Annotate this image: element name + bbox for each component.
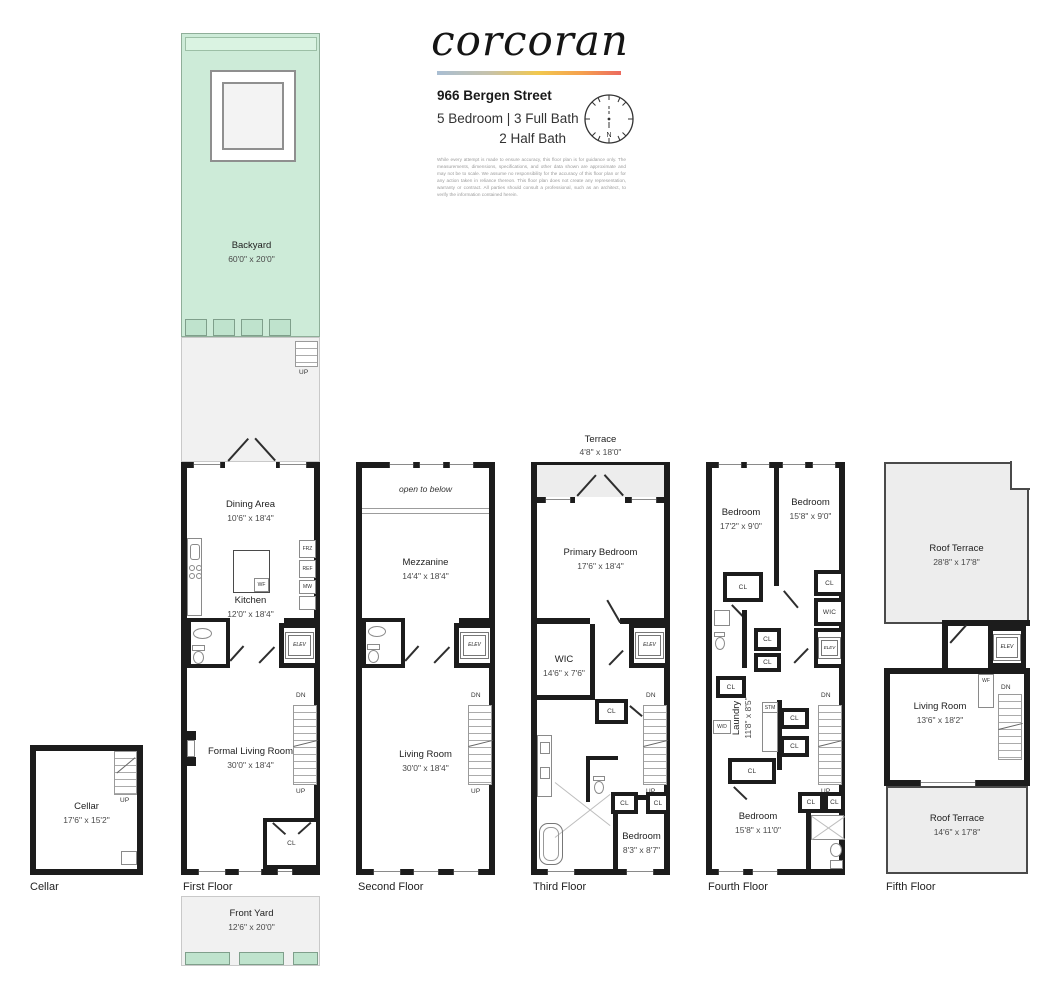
fireplace — [187, 757, 196, 766]
wic-label: WIC — [823, 609, 836, 616]
fifth-floor-stairs — [998, 694, 1022, 760]
window — [547, 869, 575, 875]
third-floor-terrace — [537, 465, 664, 497]
bath-sink — [368, 626, 386, 637]
closet-door-leaf — [630, 705, 643, 716]
third-floor-plan: Primary Bedroom 17'6" x 18'4" ELEV WIC 1… — [531, 462, 670, 875]
fourth-bedroom3-label: Bedroom 15'8" x 11'0" — [706, 810, 810, 836]
stove-burner — [196, 573, 202, 579]
bath-sink — [714, 610, 730, 626]
elevator-label: ELEV — [821, 640, 839, 657]
window — [419, 462, 444, 468]
front-yard-label: Front Yard 12'6" x 20'0" — [182, 907, 321, 933]
window — [631, 497, 657, 503]
bed-bath-line2: 2 Half Bath — [437, 131, 566, 146]
door-leaf — [606, 600, 620, 623]
bedroom-closet: CL — [723, 572, 763, 602]
backyard-structure — [210, 70, 296, 162]
mezzanine-label: Mezzanine 14'4" x 18'4" — [356, 556, 495, 582]
bedroom-closet: CL — [824, 792, 845, 813]
window — [453, 869, 479, 875]
bedroom-closet: CL — [814, 570, 845, 596]
backyard-rear-strip — [185, 37, 317, 51]
bed-bath-line1: 5 Bedroom | 3 Full Bath — [437, 111, 579, 126]
third-floor-page-label: Third Floor — [533, 881, 586, 893]
floorplan-page: corcoran 966 Bergen Street 5 Bedroom | 3… — [0, 0, 1062, 1000]
closet-label: CL — [739, 584, 748, 591]
closet-label: CL — [763, 636, 772, 643]
closet-label: CL — [287, 840, 296, 847]
bedroom-closet: CL — [611, 792, 638, 814]
cellar-stairs — [114, 751, 137, 795]
french-door-leaf — [254, 438, 275, 461]
planter — [213, 319, 235, 336]
upper-roof-terrace-label: Roof Terrace 28'8" x 17'8" — [884, 542, 1029, 568]
second-floor-page-label: Second Floor — [358, 881, 423, 893]
hall-closet: CL — [595, 699, 628, 724]
mezzanine-edge-line — [362, 513, 489, 514]
stove-burner — [189, 573, 195, 579]
third-floor-stairs — [643, 705, 667, 785]
wet-bar-label: WF — [982, 678, 990, 707]
kitchen-label: Kitchen 12'0" x 18'4" — [181, 594, 320, 620]
elevator: ELEV — [279, 623, 320, 668]
door-leaf — [608, 650, 623, 665]
window — [193, 462, 221, 468]
hall-closet: CL — [780, 736, 809, 757]
closet-label: CL — [825, 580, 834, 587]
front-yard-area: Front Yard 12'6" x 20'0" — [181, 896, 320, 966]
window — [626, 869, 654, 875]
bath-sink — [830, 860, 843, 869]
elevator: ELEV — [988, 626, 1026, 668]
third-bedroom-label: Bedroom 8'3" x 8'7" — [613, 830, 670, 856]
disclaimer-text: While every attempt is made to ensure ac… — [437, 156, 626, 198]
french-door-leaf — [227, 438, 248, 461]
roof-notch — [1010, 461, 1030, 490]
hall-closet: CL — [780, 708, 809, 729]
planter — [241, 319, 263, 336]
window — [198, 869, 226, 875]
window — [746, 462, 770, 468]
stairs-dn-label: DN — [821, 692, 831, 699]
first-floor-closet: CL — [263, 818, 320, 869]
rear-door-opening — [225, 462, 276, 468]
stairs-up-label: UP — [471, 788, 480, 795]
planter — [239, 952, 284, 965]
walk-in-closet: WIC — [814, 598, 845, 626]
window — [545, 497, 571, 503]
closet-label: CL — [654, 800, 663, 807]
closet-door-leaf — [733, 786, 747, 800]
closet-label: CL — [763, 659, 772, 666]
kitchen-sink — [190, 544, 200, 560]
door-leaf — [793, 648, 808, 663]
refrigerator: REF — [299, 560, 316, 578]
vanity-sink — [540, 767, 550, 779]
door-leaf — [404, 645, 418, 661]
rear-deck-area: UP — [181, 337, 320, 462]
washer-dryer-label: W/D — [717, 724, 727, 730]
wic-label: WIC 14'6" x 7'6" — [531, 653, 597, 679]
cellar-label: Cellar 17'6" x 15'2" — [30, 800, 143, 826]
window — [718, 869, 744, 875]
fireplace — [187, 731, 196, 740]
stove-burner — [189, 565, 195, 571]
window — [277, 869, 293, 875]
compass-north-label: N — [606, 132, 611, 139]
window — [389, 462, 414, 468]
brand-gradient-bar — [437, 71, 621, 75]
hall-closet: CL — [754, 628, 781, 651]
microwave: MW — [299, 580, 316, 594]
closet-label: CL — [607, 708, 616, 715]
terrace-door-opening — [575, 497, 625, 503]
closet-label: CL — [790, 743, 799, 750]
wine-fridge-label: WF — [258, 582, 266, 588]
fourth-floor-stairs — [818, 705, 842, 785]
second-floor-plan: open to below Mezzanine 14'4" x 18'4" EL… — [356, 462, 495, 875]
door-leaf — [258, 646, 274, 663]
wet-bar: WF — [978, 674, 994, 708]
closet-label: CL — [807, 799, 816, 806]
first-floor-page-label: First Floor — [183, 881, 233, 893]
fireplace-niche — [187, 740, 195, 757]
washer-dryer: W/D — [713, 720, 731, 734]
cellar-page-label: Cellar — [30, 881, 59, 893]
closet-label: CL — [748, 768, 757, 775]
window — [373, 869, 401, 875]
stairs-dn-label: DN — [296, 692, 306, 699]
laundry-label: Laundry 11'8" x 8'5" — [731, 683, 755, 753]
shower-line — [555, 794, 611, 838]
stove-burner — [196, 565, 202, 571]
window — [413, 869, 439, 875]
hall-closet: CL — [754, 653, 781, 672]
door-leaf — [433, 646, 449, 663]
mezzanine-edge-line — [362, 508, 489, 509]
planter — [185, 319, 207, 336]
window — [718, 462, 742, 468]
open-to-below-label: open to below — [356, 484, 495, 494]
elevator-label: ELEV — [463, 635, 486, 656]
second-floor-stairs — [468, 705, 492, 785]
freezer-label: FRZ — [303, 546, 313, 552]
elevator-label: ELEV — [288, 635, 311, 656]
window — [782, 462, 806, 468]
closet-label: CL — [620, 800, 629, 807]
vanity-sink — [540, 742, 550, 754]
deck-stairs-up-label: UP — [299, 369, 308, 376]
planter — [185, 952, 230, 965]
elevator: ELEV — [629, 623, 670, 668]
bedroom-closet: CL — [728, 758, 776, 784]
toilet-bowl — [368, 650, 379, 663]
powder-sink — [193, 628, 212, 639]
door-leaf — [783, 590, 798, 608]
elevator: ELEV — [454, 623, 495, 668]
lower-roof-terrace-label: Roof Terrace 14'6" x 17'8" — [886, 812, 1028, 838]
toilet-bowl — [594, 781, 604, 794]
terrace-label: Terrace 4'8" x 18'0" — [531, 434, 670, 458]
fourth-floor-page-label: Fourth Floor — [708, 881, 768, 893]
steam-unit: STM — [762, 702, 778, 713]
closet-label: CL — [790, 715, 799, 722]
toilet-bowl — [830, 843, 842, 857]
window — [238, 869, 262, 875]
backyard-area: Backyard 60'0" x 20'0" — [181, 33, 320, 337]
door-leaf — [229, 645, 243, 661]
property-address: 966 Bergen Street — [437, 88, 552, 103]
fifth-floor-plan: Roof Terrace 28'8" x 17'8" ELEV Living R… — [884, 462, 1030, 875]
elevator-label: ELEV — [996, 637, 1019, 658]
window — [812, 462, 836, 468]
corcoran-logo: corcoran — [410, 20, 650, 62]
elevator: ELEV — [814, 628, 845, 668]
stairs-dn-label: DN — [646, 692, 656, 699]
fifth-living-room-label: Living Room 13'6" x 18'2" — [890, 700, 990, 726]
fourth-bedroom1-label: Bedroom 17'2" x 9'0" — [706, 506, 776, 532]
cellar-utility-box — [121, 851, 137, 865]
window — [279, 462, 307, 468]
stairs-dn-label: DN — [471, 692, 481, 699]
first-floor-stairs — [293, 705, 317, 785]
planter — [269, 319, 291, 336]
cellar-plan: UP Cellar 17'6" x 15'2" — [30, 745, 143, 875]
fourth-floor-plan: Bedroom 17'2" x 9'0" Bedroom 15'8" x 9'0… — [706, 462, 845, 875]
fourth-bedroom2-label: Bedroom 15'8" x 9'0" — [776, 496, 845, 522]
door-leaf — [949, 624, 966, 643]
toilet-bowl — [193, 651, 204, 664]
elevator-label: ELEV — [638, 635, 661, 656]
wine-fridge: WF — [254, 578, 269, 592]
toilet-bowl — [715, 637, 725, 650]
refrigerator-label: REF — [303, 566, 313, 572]
closet-label: CL — [830, 799, 839, 806]
primary-bedroom-label: Primary Bedroom 17'6" x 18'4" — [531, 546, 670, 572]
bedroom-closet: CL — [798, 792, 824, 813]
fifth-floor-page-label: Fifth Floor — [886, 881, 936, 893]
dining-area-label: Dining Area 10'6" x 18'4" — [181, 498, 320, 524]
steam-label: STM — [765, 705, 776, 711]
window — [752, 869, 778, 875]
microwave-label: MW — [303, 584, 312, 590]
window — [449, 462, 474, 468]
bathtub — [539, 823, 563, 865]
stairs-up-label: UP — [296, 788, 305, 795]
backyard-label: Backyard 60'0" x 20'0" — [182, 239, 321, 265]
compass-icon: N — [582, 92, 636, 146]
planter — [293, 952, 318, 965]
deck-stairs — [295, 341, 318, 367]
first-floor-plan: Dining Area 10'6" x 18'4" WF FRZ REF MW … — [181, 462, 320, 875]
stairs-dn-label: DN — [1001, 684, 1011, 691]
bedroom-closet: CL — [646, 792, 670, 814]
freezer: FRZ — [299, 540, 316, 558]
backyard-structure-inner — [222, 82, 284, 150]
